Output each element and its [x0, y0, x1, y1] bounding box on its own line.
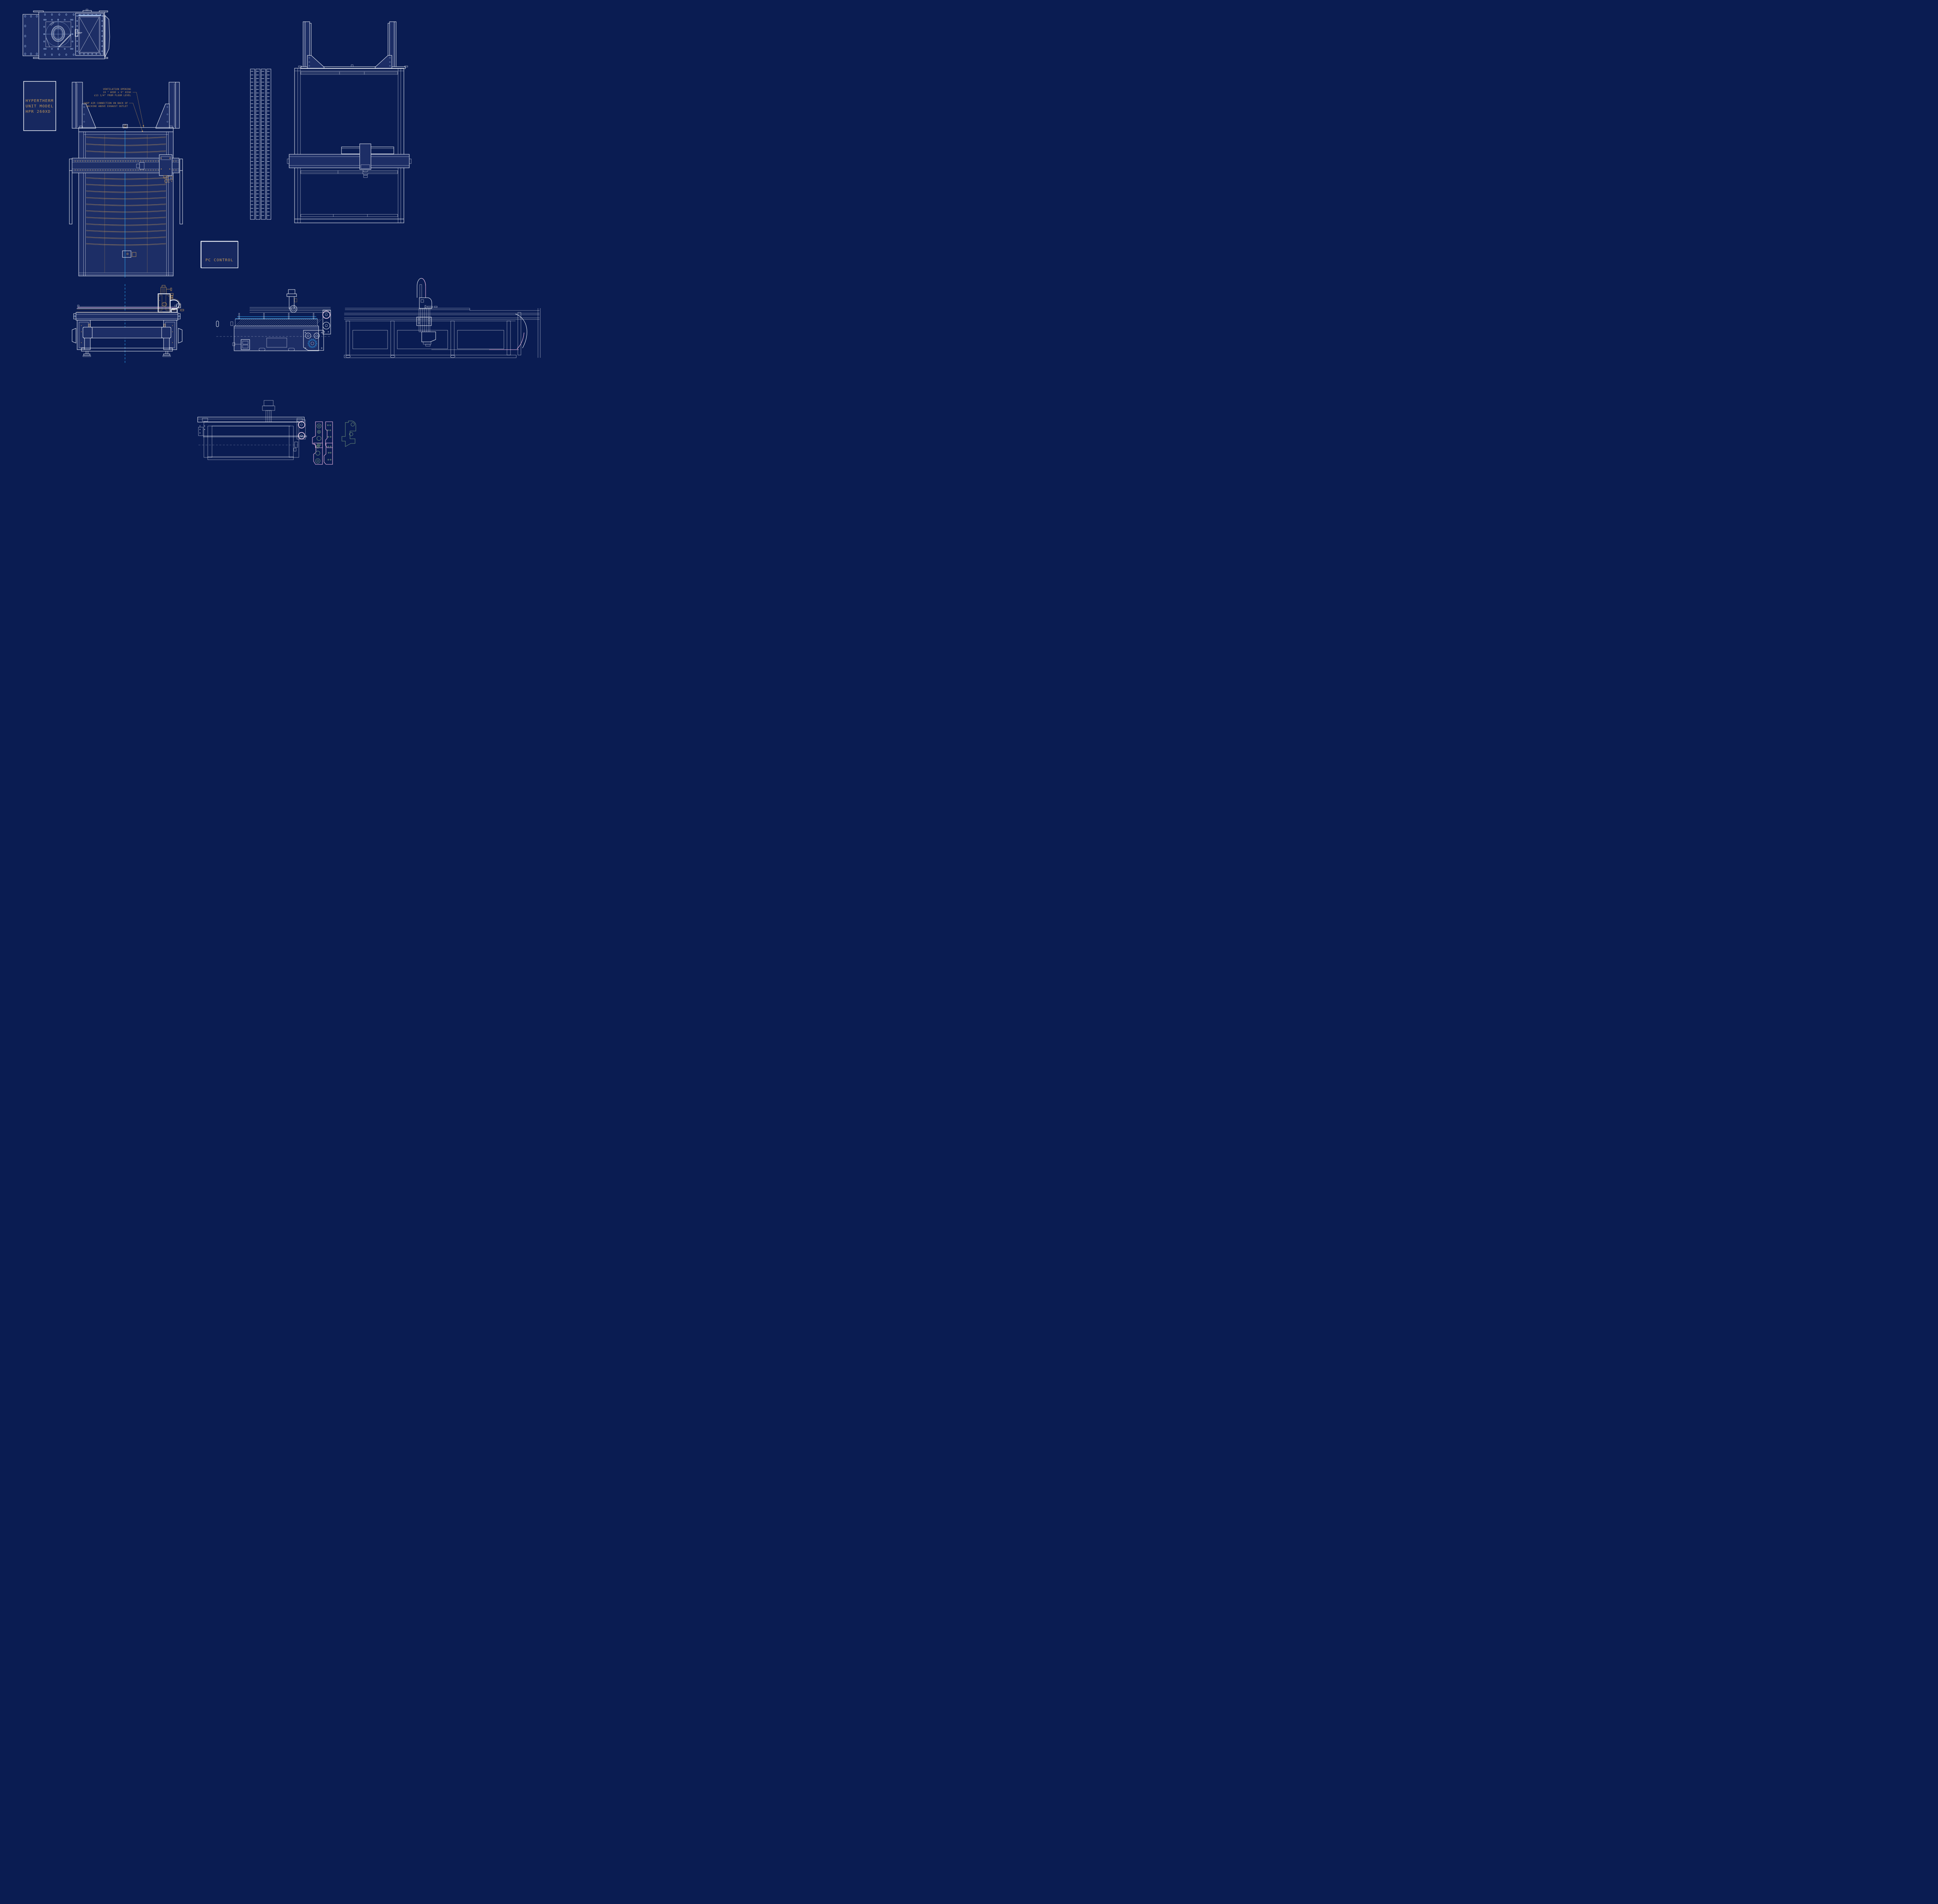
torch-hose: [170, 300, 179, 310]
plate-top-right: [326, 422, 333, 448]
water-table-bed: [79, 132, 173, 276]
vent-note-line2: 19 " WIDE x 9" HIGH: [103, 91, 131, 94]
hypertherm-line3: HPR 260XD: [26, 110, 51, 114]
plate-bottom-left: [314, 443, 322, 464]
side-flange-left: [72, 328, 76, 343]
drive-table-body: [234, 326, 319, 351]
machine-side-view: [344, 278, 540, 358]
z-tower-side: [417, 278, 436, 346]
end-beam: [76, 312, 178, 320]
z-carriage-front: [360, 144, 371, 169]
blueprint-sheet: HYPERTHERM UNIT MODEL HPR 260XD VENTILAT…: [0, 0, 549, 476]
leveling-foot-right: [163, 351, 171, 357]
exhaust-enclosure-view: [23, 9, 110, 59]
hypertherm-label-box: HYPERTHERM UNIT MODEL HPR 260XD: [24, 81, 56, 131]
bracket-part: [342, 421, 356, 447]
shopair-note-line1: SHOP AIR CONNECTION ON BACK OF: [84, 102, 128, 105]
machine-top-view: VENTILATION OPENING 19 " WIDE x 9" HIGH …: [69, 82, 183, 278]
section-hatch: [235, 319, 322, 326]
machine-end-view: [72, 284, 184, 364]
hypertherm-line2: UNIT MODEL: [26, 104, 53, 109]
plate-bottom-right: [324, 443, 333, 464]
cross-beam: [83, 327, 171, 338]
gantry-drive-view: [216, 290, 331, 351]
torch-front: [363, 171, 368, 178]
drawing-canvas: HYPERTHERM UNIT MODEL HPR 260XD VENTILAT…: [0, 0, 549, 476]
slat-rack-strips: [250, 69, 271, 219]
bracket-detail-parts: [312, 421, 356, 464]
lifter-dome: [417, 278, 426, 298]
annotation-ventilation: VENTILATION OPENING 19 " WIDE x 9" HIGH …: [94, 88, 144, 128]
pc-control-label: PC CONTROL: [205, 258, 233, 262]
side-flange-right: [178, 328, 182, 343]
pin-detail: [216, 321, 219, 327]
gantry-beam-front: [287, 144, 411, 178]
vent-note-line1: VENTILATION OPENING: [103, 88, 131, 91]
enclosure-side-flap: [105, 16, 110, 57]
enclosure-door: [75, 13, 104, 55]
shopair-note-line2: MACHINE ABOVE EXHAUST OUTLET: [86, 105, 128, 108]
machine-front-view: [287, 22, 411, 223]
hypertherm-line1: HYPERTHERM: [26, 99, 53, 103]
vent-note-line3: ¢13 1/4" FROM FLOOR LEVEL: [94, 94, 131, 97]
leveling-foot-left: [83, 351, 91, 357]
left-bracket: [198, 426, 205, 436]
end-view-bottom: [198, 400, 307, 460]
pc-control-box: PC CONTROL: [201, 241, 238, 268]
motor-tower: [262, 400, 275, 422]
